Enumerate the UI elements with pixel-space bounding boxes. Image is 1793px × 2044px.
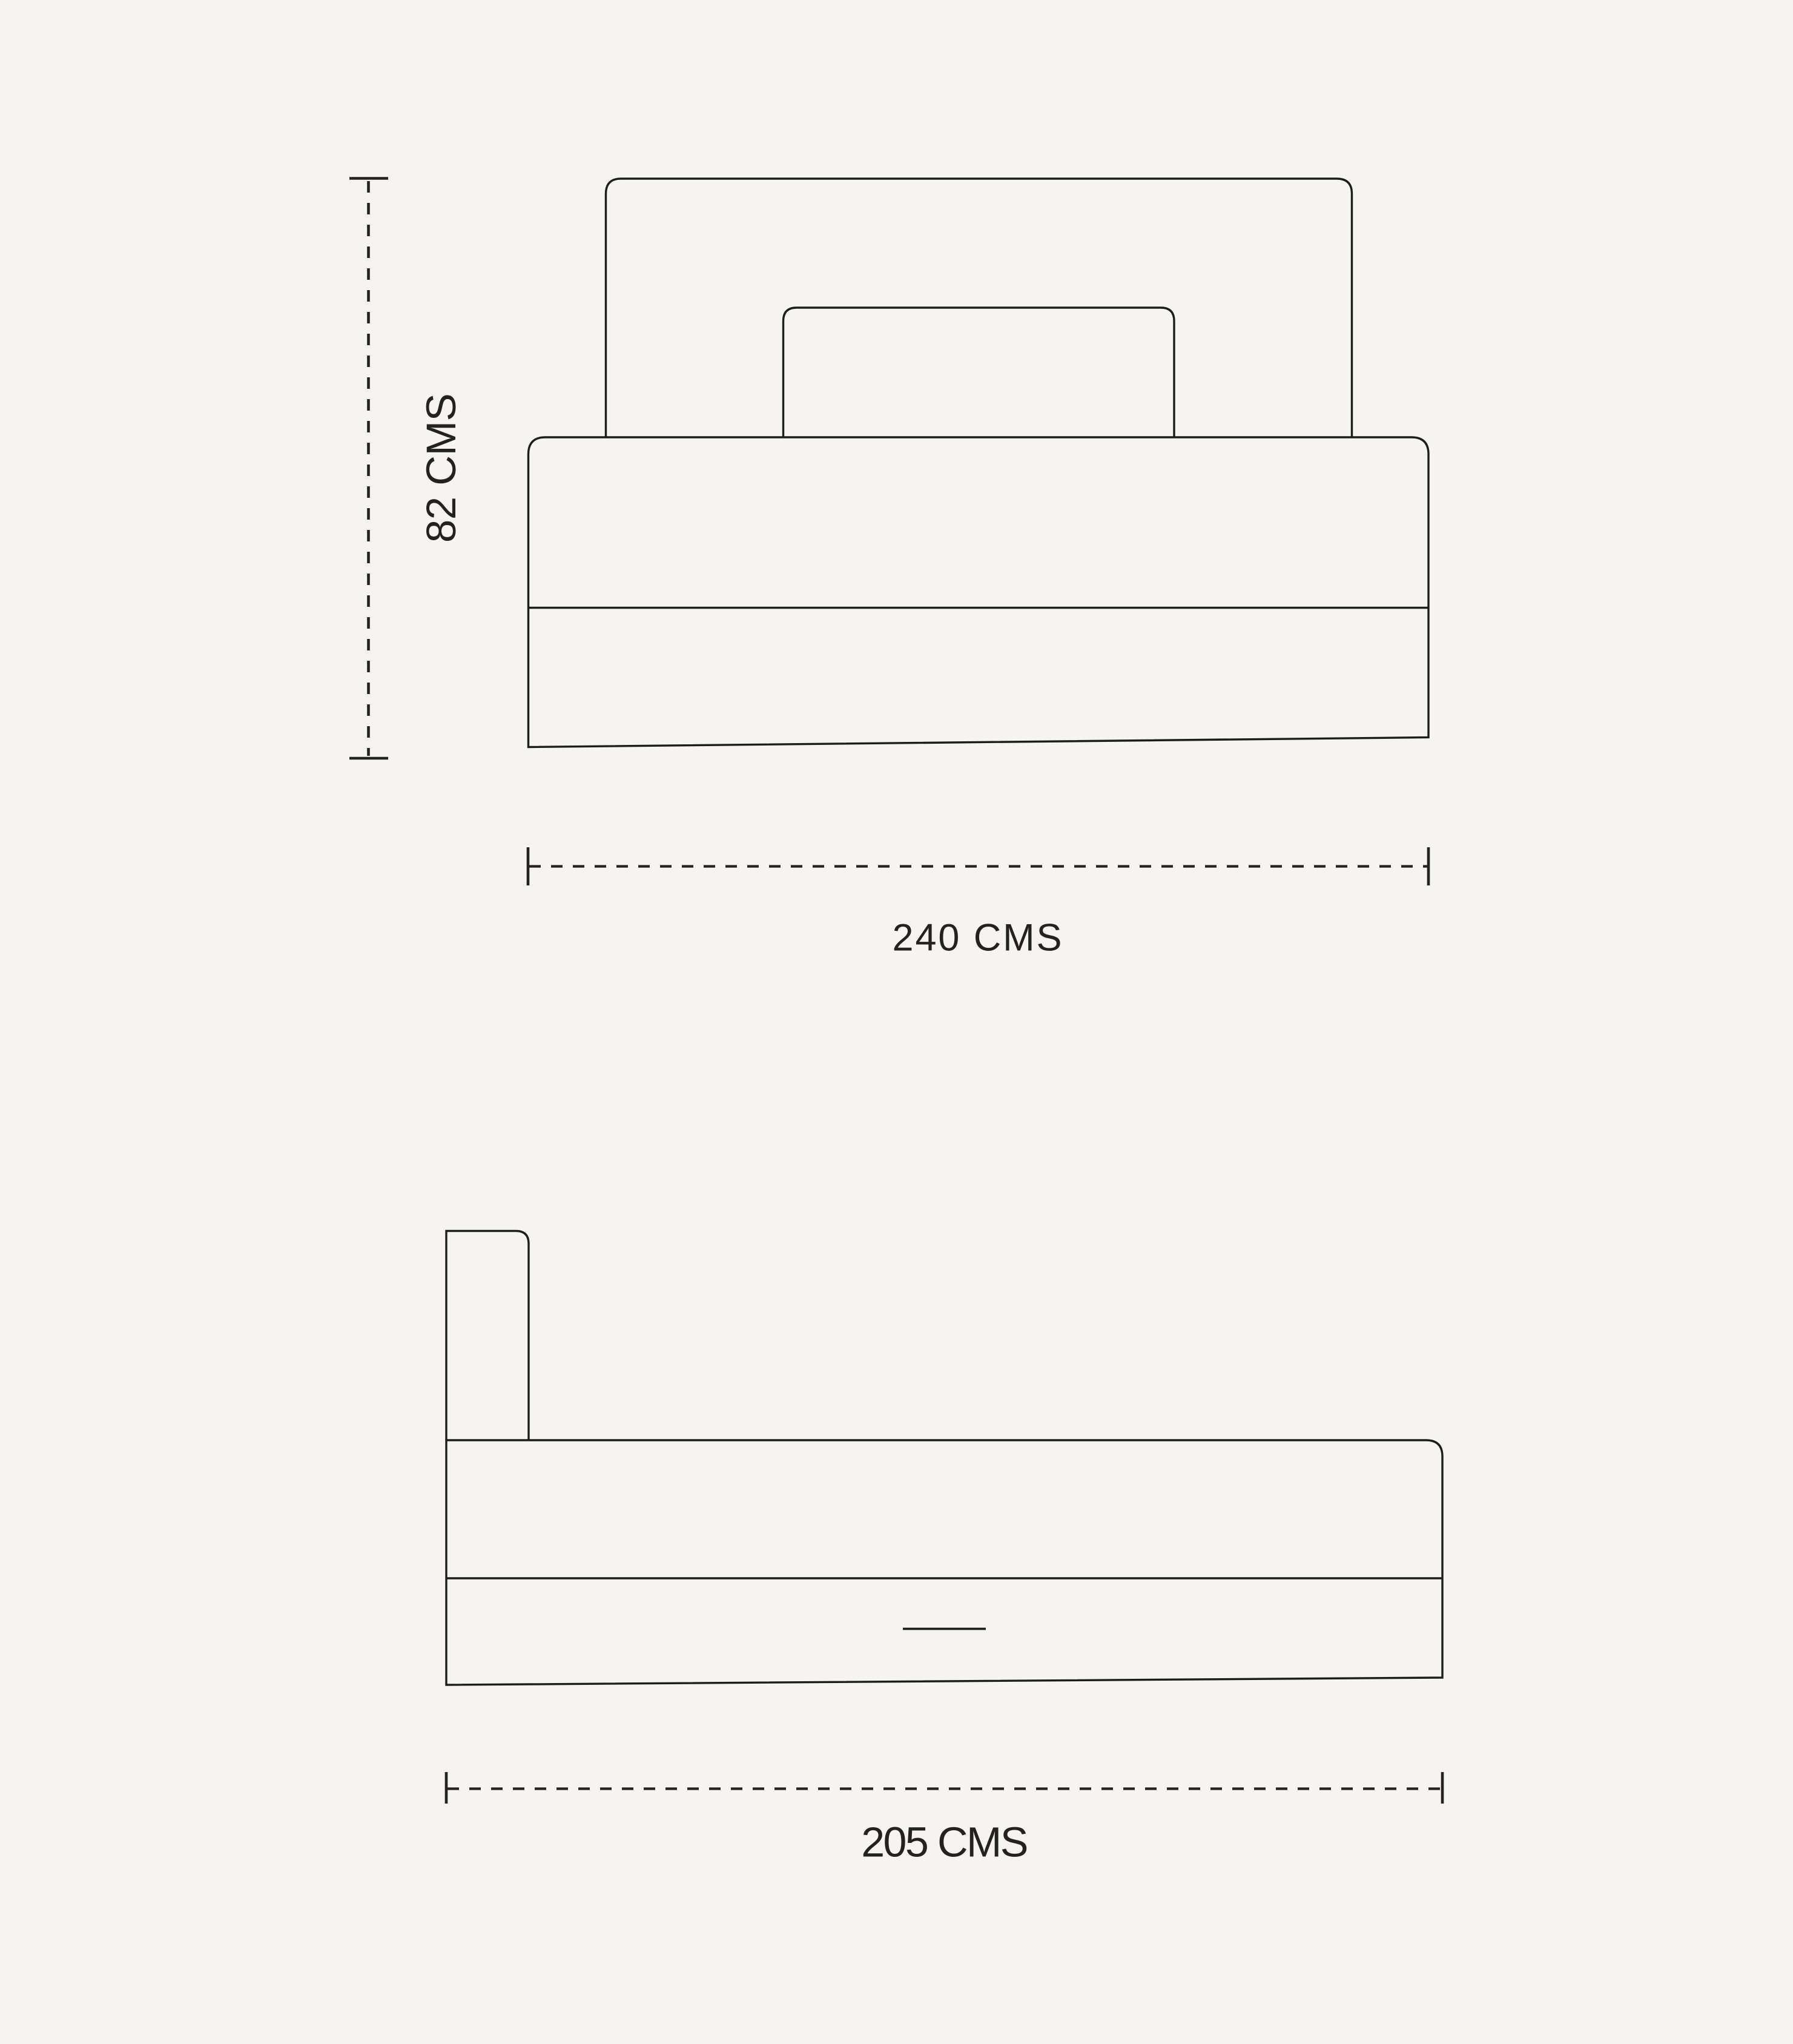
svg-text:82 CMS: 82 CMS <box>418 394 464 543</box>
svg-text:240 CMS: 240 CMS <box>893 917 1064 959</box>
svg-text:205 CMS: 205 CMS <box>861 1819 1027 1866</box>
